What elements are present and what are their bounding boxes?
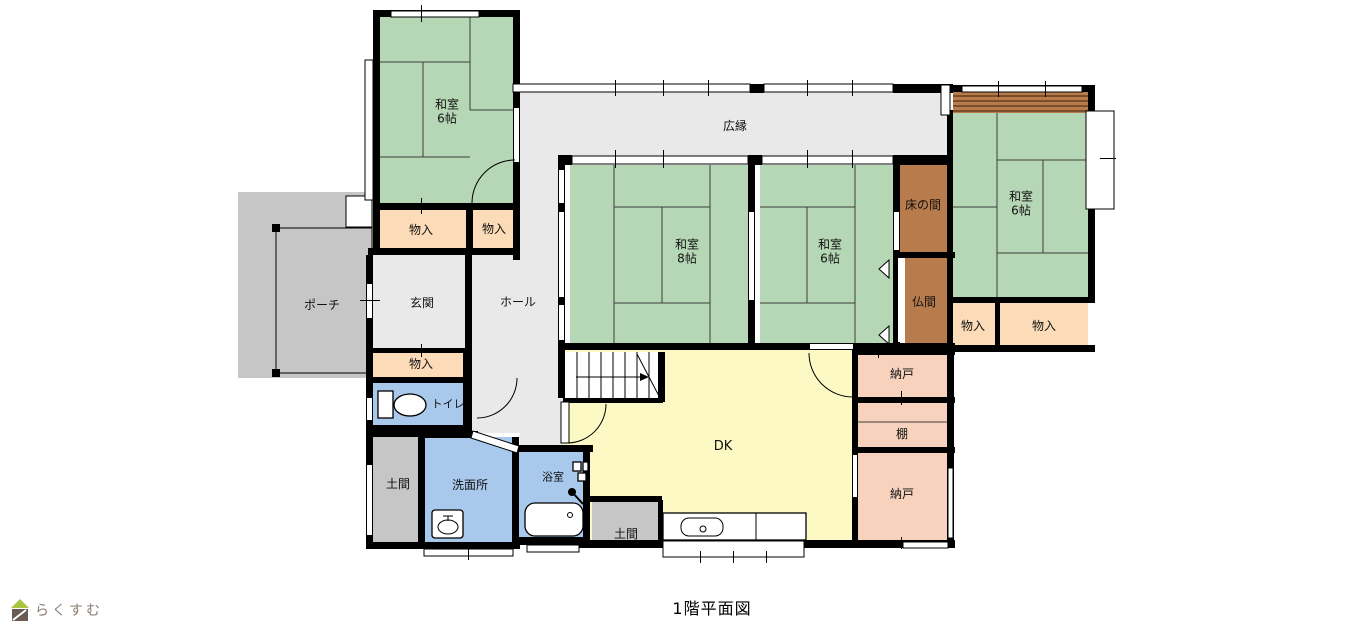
label-monoire-nw2: 物入 (482, 222, 506, 236)
stairs-area (563, 352, 660, 398)
window (948, 468, 953, 538)
kitchen-counter (663, 513, 806, 540)
logo: らくすむ (10, 598, 103, 622)
bay-window (1086, 111, 1114, 209)
window (391, 11, 479, 17)
label-doma-2: 土間 (614, 527, 638, 541)
sliding-door-track (898, 258, 905, 342)
label-doma-1: 土間 (386, 477, 410, 491)
label-washitsu-e: 和室 6帖 (1009, 190, 1033, 219)
label-monoire-e2: 物入 (1032, 319, 1056, 333)
shoji-door (762, 156, 893, 164)
room-hall (472, 255, 520, 433)
label-washitsu-nw: 和室 6帖 (435, 98, 459, 127)
label-washitsu-c: 和室 6帖 (818, 238, 842, 267)
label-toilet: トイレ (432, 397, 465, 410)
window (365, 60, 373, 200)
label-monoire-e1: 物入 (961, 319, 985, 333)
label-tana: 棚 (896, 427, 908, 441)
house-icon (10, 598, 30, 622)
label-porch: ポーチ (304, 298, 340, 312)
fusuma-door (749, 212, 754, 300)
label-nando-1: 納戸 (890, 367, 914, 381)
shoji-door (572, 156, 748, 164)
window (941, 85, 950, 115)
label-dk: DK (714, 439, 733, 455)
label-butsuma: 仏間 (912, 295, 936, 309)
washbasin-icon (432, 510, 463, 538)
bathtub-icon (525, 503, 583, 536)
floorplan-drawing (0, 0, 1350, 627)
label-genkan: 玄関 (410, 296, 434, 310)
window (764, 84, 893, 92)
window (513, 84, 750, 92)
logo-text: らくすむ (35, 600, 103, 620)
label-monoire-nw1: 物入 (409, 223, 433, 237)
plan-caption: 1階平面図 (672, 595, 751, 619)
label-monoire-s: 物入 (409, 357, 433, 371)
window (527, 545, 579, 552)
label-senmenjo: 洗面所 (452, 478, 488, 492)
label-washitsu-8: 和室 8帖 (675, 238, 699, 267)
room-washitsu-8 (570, 165, 748, 343)
label-hiroen: 広縁 (723, 119, 747, 133)
label-tokonoma: 床の間 (905, 198, 941, 212)
sliding-door-track (561, 402, 569, 443)
label-yokushitsu: 浴室 (542, 470, 564, 483)
window (903, 542, 948, 548)
label-nando-2: 納戸 (890, 487, 914, 501)
label-hall: ホール (500, 295, 536, 309)
floorplan: 和室 6帖 物入 物入 広縁 和室 8帖 和室 6帖 床の間 仏間 和室 6帖 … (0, 0, 1350, 627)
window (962, 86, 1082, 92)
entry-step (346, 196, 372, 227)
